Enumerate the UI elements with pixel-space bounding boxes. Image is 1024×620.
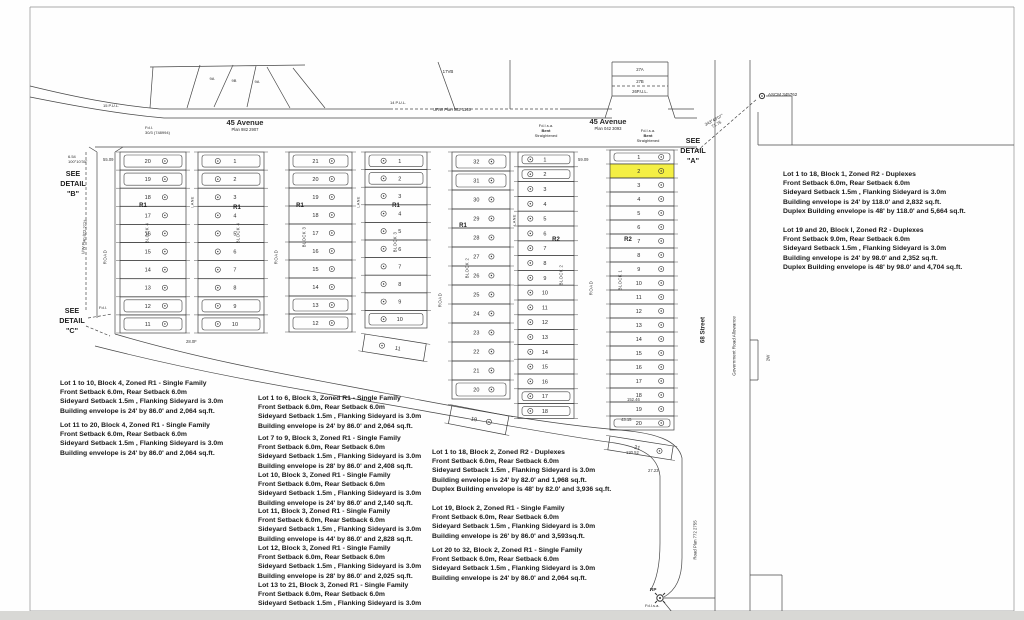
note-line: Building envelope is 28' by 86.0' and 2,… xyxy=(258,462,421,471)
parcel-9b-label: 9B xyxy=(232,78,237,83)
note-line: Lot 1 to 10, Block 4, Zoned R1 - Single … xyxy=(60,379,223,388)
zoning-note-block: Lot 19 and 20, Block I, Zoned R2 - Duple… xyxy=(783,226,962,272)
see-detail-a-line: SEE xyxy=(680,136,705,146)
zoning-note-block: Lot 1 to 10, Block 4, Zoned R1 - Single … xyxy=(60,379,223,416)
parcel-27b-label: 27B xyxy=(636,79,643,84)
note-line: Front Setback 6.0m, Rear Setback 6.0m xyxy=(432,513,595,522)
see-detail-b-line: DETAIL xyxy=(60,179,85,189)
note-line: Lot 11, Block 3, Zoned R1 - Single Famil… xyxy=(258,507,421,516)
note-line: Sideyard Setback 1.5m , Flanking Sideyar… xyxy=(783,188,966,197)
note-line: Sideyard Setback 1.5m , Flanking Sideyar… xyxy=(258,412,421,421)
note-line: Building envelope is 24' by 98.0' and 2,… xyxy=(783,254,962,263)
note-line: Building envelope is 24' by 118.0' and 2… xyxy=(783,198,966,207)
note-line: Front Setback 6.0m, Rear Setback 6.0m xyxy=(258,480,421,489)
parcel-27a-label: 27A xyxy=(636,67,643,72)
block-label: BLOCK 4 xyxy=(236,223,241,244)
corner-dimension-label: 6.54 100°10'30" xyxy=(68,155,87,165)
see-detail-c-line: SEE xyxy=(59,306,84,316)
note-line: Duplex Building envelope is 48' by 82.0'… xyxy=(432,485,611,494)
note-line: Lot 1 to 18, Block 1, Zoned R2 - Duplexe… xyxy=(783,170,966,179)
found-iron-top-label: Fd.I. 30/3 (748994) xyxy=(145,126,170,136)
zoning-label: R1 xyxy=(233,205,241,211)
zoning-note-block: Lot 1 to 18, Block 2, Zoned R2 - Duplexe… xyxy=(432,448,611,494)
note-line: Lot 12, Block 3, Zoned R1 - Single Famil… xyxy=(258,544,421,553)
note-line: Front Setback 9.0m, Rear Setback 6.0m xyxy=(783,235,962,244)
zoning-note-block: Lot 11 to 20, Block 4, Zoned R1 - Single… xyxy=(60,421,223,458)
note-line: Front Setback 6.0m, Rear Setback 6.0m xyxy=(258,443,421,452)
zoning-note-block: Lot 11, Block 3, Zoned R1 - Single Famil… xyxy=(258,507,421,544)
road-label: ROAD xyxy=(103,250,108,264)
zoning-label: R1 xyxy=(139,203,147,209)
survey-plan-page: 2019181716151413121112345678910212019181… xyxy=(0,0,1024,620)
see-detail-c-line: DETAIL xyxy=(59,316,84,326)
found-post-line: Straightened xyxy=(535,134,558,139)
note-line: Sideyard Setback 1.5m , Flanking Sideyar… xyxy=(432,522,595,531)
block-label: BLOCK 3 xyxy=(302,227,307,248)
note-line: Lot 13 to 21, Block 3, Zoned R1 - Single… xyxy=(258,581,421,590)
found-iron-label: Fd.I. xyxy=(99,305,107,310)
note-line: Building envelope is 44' by 86.0' and 2,… xyxy=(258,535,421,544)
scan-bottom-edge xyxy=(0,611,1024,620)
zoning-note-block: Lot 13 to 21, Block 3, Zoned R1 - Single… xyxy=(258,581,421,609)
note-line: Lot 1 to 18, Block 2, Zoned R2 - Duplexe… xyxy=(432,448,611,457)
parcel-17vb-label: 17VB xyxy=(443,69,454,74)
note-line: Front Setback 6.0m, Rear Setback 6.0m xyxy=(783,179,966,188)
block-label: BLOCK 1 xyxy=(618,270,623,291)
rp-monument-label: RP xyxy=(650,587,656,592)
rp-monument-sub-label: Fd.I.s.a. xyxy=(645,603,659,608)
lane-label: LANE xyxy=(356,196,361,207)
zoning-label: R2 xyxy=(552,237,560,243)
road-plan-label: Road Plan 772 2755 xyxy=(693,520,698,559)
zoning-label: R1 xyxy=(459,223,467,229)
note-line: Sideyard Setback 1.5m , Flanking Sideyar… xyxy=(60,397,223,406)
note-line: Front Setback 6.0m, Rear Setback 6.0m xyxy=(432,555,595,564)
block-label: BLOCK 3 xyxy=(393,232,398,253)
see-detail-a: SEE DETAIL "A" xyxy=(680,136,705,166)
note-line: Front Setback 6.0m, Rear Setback 6.0m xyxy=(60,430,223,439)
label-layer: 45 Avenue Plan 982 2907 45 Avenue Plan 0… xyxy=(0,0,1024,620)
note-line: Front Setback 6.0m, Rear Setback 6.0m xyxy=(258,403,421,412)
note-line: Front Setback 6.0m, Rear Setback 6.0m xyxy=(258,590,421,599)
street-45-avenue-east: 45 Avenue xyxy=(590,117,627,126)
note-line: Front Setback 6.0m, Rear Setback 6.0m xyxy=(432,457,611,466)
see-detail-b-line: SEE xyxy=(60,169,85,179)
zoning-note-block: Lot 10, Block 3, Zoned R1 - Single Famil… xyxy=(258,471,421,508)
note-line: Building envelope is 24' by 82.0' and 1,… xyxy=(432,476,611,485)
note-line: Lot 11 to 20, Block 4, Zoned R1 - Single… xyxy=(60,421,223,430)
note-line: Sideyard Setback 1.5m , Flanking Sideyar… xyxy=(258,525,421,534)
see-detail-b-line: "B" xyxy=(60,189,85,199)
zoning-note-block: Lot 19, Block 2, Zoned R1 - Single Famil… xyxy=(432,504,595,541)
dimension-label: 59.09 xyxy=(578,157,588,162)
lane-label: LANE xyxy=(190,196,195,207)
block-label: BLOCK 2 xyxy=(465,258,470,279)
note-line: Lot 1 to 6, Block 3, Zoned R1 - Single F… xyxy=(258,394,421,403)
dimension-label: 55.09 xyxy=(103,157,113,162)
zoning-label: R2 xyxy=(624,237,632,243)
parcel-9a-label: 9A xyxy=(210,76,215,81)
see-detail-b: SEE DETAIL "B" xyxy=(60,169,85,199)
dimension-label: 27.23 xyxy=(648,468,658,473)
note-line: Building envelope is 28' by 86.0' and 2,… xyxy=(258,572,421,581)
dimension-label: 43.15 xyxy=(621,417,631,422)
government-road-allowance-label: Government Road Allowance xyxy=(732,316,737,376)
note-line: Building envelope is 24' by 86.0' and 2,… xyxy=(258,422,421,431)
zoning-note-block: Lot 7 to 9, Block 3, Zoned R1 - Single F… xyxy=(258,434,421,471)
note-line: Duplex Building envelope is 48' by 98.0'… xyxy=(783,263,962,272)
lane-label: LANE xyxy=(512,214,517,225)
road-label: ROAD xyxy=(589,281,594,295)
note-line: Sideyard Setback 1.5m , Flanking Sideyar… xyxy=(258,489,421,498)
note-line: Lot 7 to 9, Block 3, Zoned R1 - Single F… xyxy=(258,434,421,443)
note-line: Lot 19, Block 2, Zoned R1 - Single Famil… xyxy=(432,504,595,513)
zoning-note-block: Lot 12, Block 3, Zoned R1 - Single Famil… xyxy=(258,544,421,581)
note-line: Front Setback 6.0m, Rear Setback 6.0m xyxy=(258,516,421,525)
note-line: Front Setback 6.0m, Rear Setback 6.0m xyxy=(258,553,421,562)
note-line: Building envelope is 24' by 86.0' and 2,… xyxy=(60,449,223,458)
see-detail-a-line: "A" xyxy=(680,156,705,166)
see-detail-c-line: "C" xyxy=(59,326,84,336)
strip-2w-label: 2W xyxy=(766,355,771,362)
note-line: Sideyard Setback 1.5m , Flanking Sideyar… xyxy=(432,564,595,573)
found-post-note-2: Fd.I.s.a. Bent Straightened xyxy=(637,129,660,143)
road-label: ROAD xyxy=(438,293,443,307)
street-68-label: 68 Street xyxy=(700,317,707,343)
parcel-9a2-label: 9A xyxy=(255,79,260,84)
note-line: Sideyard Setback 1.5m , Flanking Sideyar… xyxy=(258,562,421,571)
block-label: BLOCK 2 xyxy=(559,265,564,286)
found-post-note-1: Fd.I.s.a. Bent Straightened xyxy=(535,124,558,138)
found-iron-top-line: 30/3 (748994) xyxy=(145,131,170,136)
note-line: Building envelope is 24' by 86.0' and 2,… xyxy=(60,407,223,416)
note-line: Sideyard Setback 1.5m , Flanking Sideyar… xyxy=(783,244,962,253)
dimension-label: 130.52 xyxy=(626,450,639,455)
see-detail-c: SEE DETAIL "C" xyxy=(59,306,84,336)
see-detail-a-line: DETAIL xyxy=(680,146,705,156)
urw-plan-label: URW Plan 982 1145 xyxy=(433,107,471,112)
corner-dim-line: 100°10'30" xyxy=(68,160,87,165)
zoning-note-block: Lot 1 to 18, Block 1, Zoned R2 - Duplexe… xyxy=(783,170,966,216)
parcel-26pul-label: 26P.U.L. xyxy=(632,89,648,94)
dimension-label: 152.46 xyxy=(627,397,640,402)
note-line: Lot 10, Block 3, Zoned R1 - Single Famil… xyxy=(258,471,421,480)
block-label: BLOCK 4 xyxy=(145,223,150,244)
note-line: Lot 19 and 20, Block I, Zoned R2 - Duple… xyxy=(783,226,962,235)
street-45-avenue-west: 45 Avenue xyxy=(227,118,264,127)
note-line: Front Setback 6.0m, Rear Setback 6.0m xyxy=(60,388,223,397)
zoning-note-block: Lot 20 to 32, Block 2, Zoned R1 - Single… xyxy=(432,546,595,583)
pul-14-label: 14 P.U.L. xyxy=(390,100,406,105)
uw-plan-label: U/W Plan 872 2773 xyxy=(80,220,87,255)
found-post-line: Straightened xyxy=(637,139,660,144)
bearing-label: 343°48'07" 71.75 xyxy=(704,113,727,132)
dimension-label: 28.0F xyxy=(186,339,197,344)
zoning-label: R1 xyxy=(296,203,304,209)
note-line: Building envelope is 24' by 86.0' and 2,… xyxy=(432,574,595,583)
note-line: Sideyard Setback 1.5m , Flanking Sideyar… xyxy=(60,439,223,448)
pul-15-label: 15 P.U.L. xyxy=(103,103,119,108)
note-line: Lot 20 to 32, Block 2, Zoned R1 - Single… xyxy=(432,546,595,555)
note-line: Sideyard Setback 1.5m , Flanking Sideyar… xyxy=(258,599,421,608)
ascm-monument-label: ASCM 345762 xyxy=(768,92,797,97)
zoning-note-block: Lot 1 to 6, Block 3, Zoned R1 - Single F… xyxy=(258,394,421,431)
note-line: Sideyard Setback 1.5m , Flanking Sideyar… xyxy=(258,452,421,461)
road-label: ROAD xyxy=(274,250,279,264)
street-45-avenue-west-plan: Plan 982 2907 xyxy=(231,127,258,132)
zoning-label: R1 xyxy=(392,203,400,209)
note-line: Sideyard Setback 1.5m , Flanking Sideyar… xyxy=(432,466,611,475)
note-line: Duplex Building envelope is 48' by 118.0… xyxy=(783,207,966,216)
note-line: Building envelope is 26' by 86.0' and 3,… xyxy=(432,532,595,541)
street-45-avenue-east-plan: Plan 042 3093 xyxy=(594,126,621,131)
